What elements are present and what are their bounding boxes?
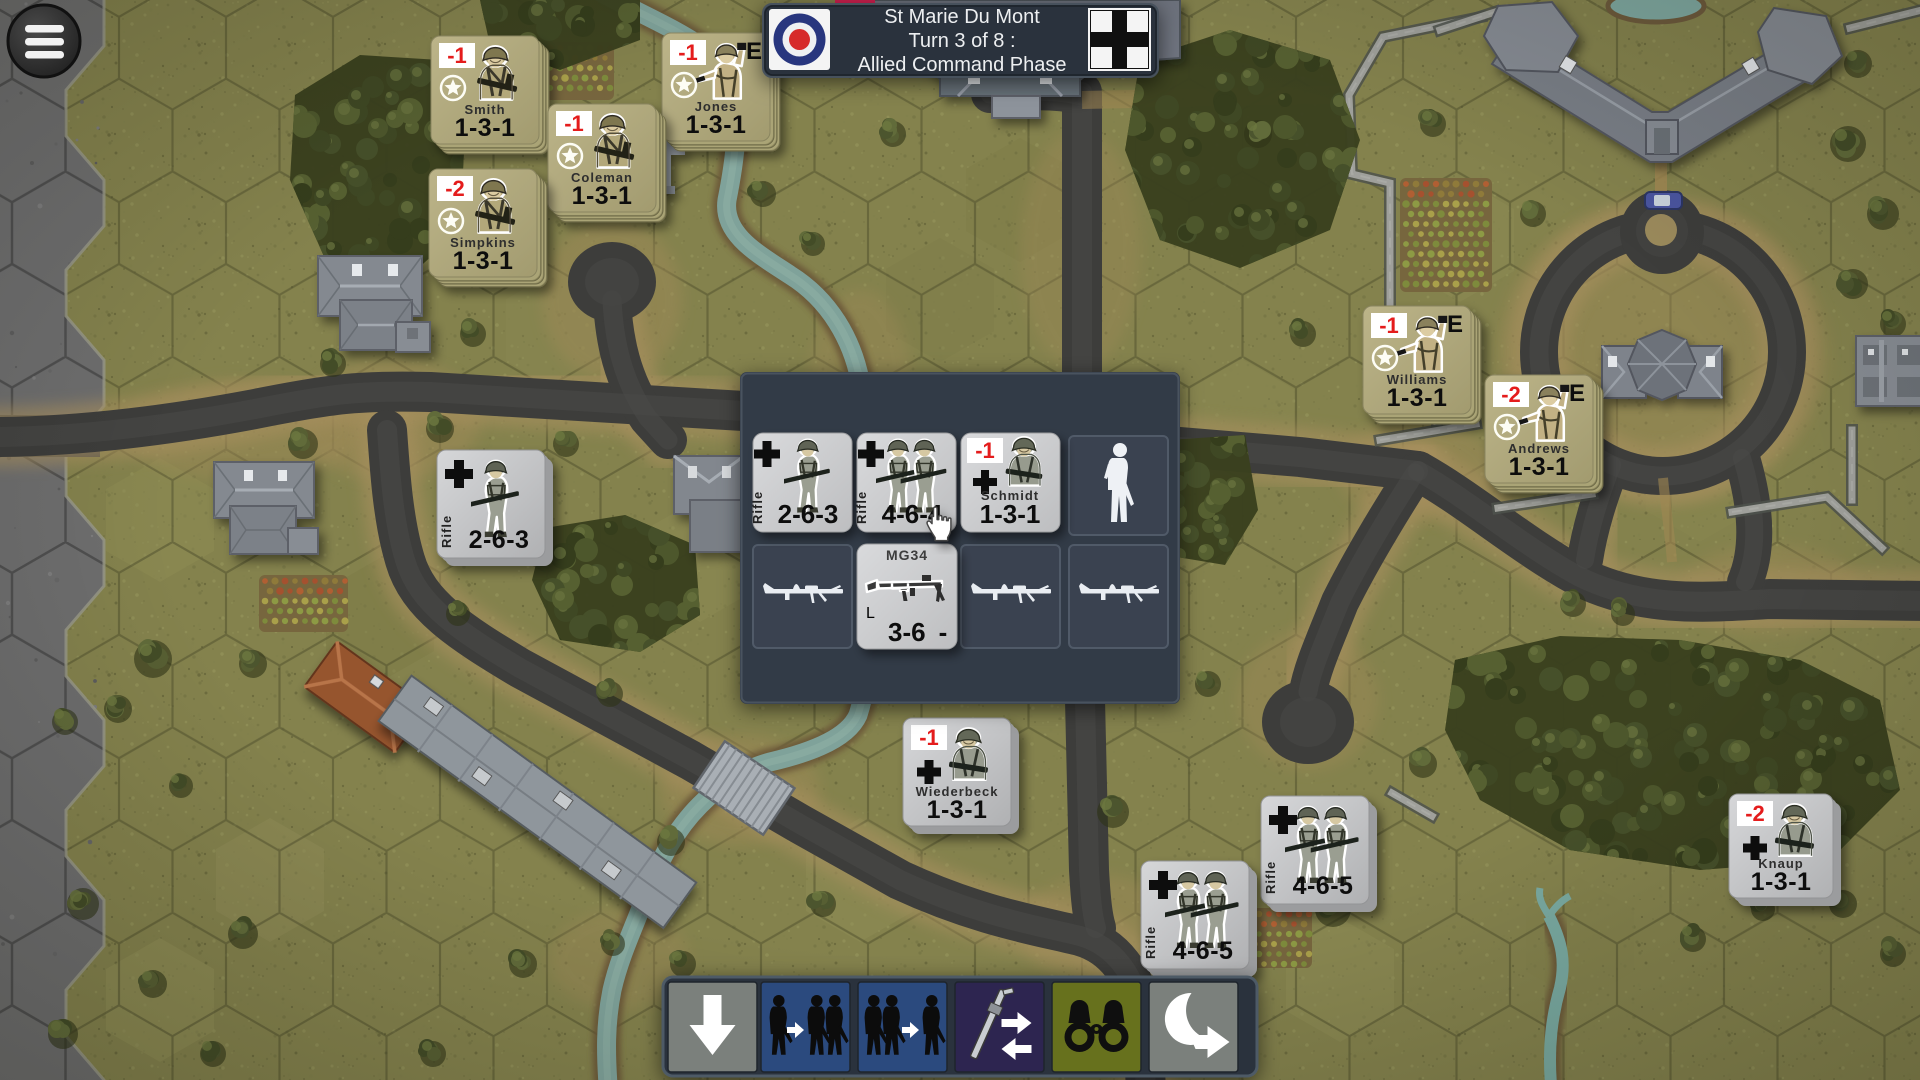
svg-text:E: E — [1569, 380, 1585, 407]
svg-text:1-3-1: 1-3-1 — [455, 114, 516, 142]
svg-text:Turn 3 of 8 :: Turn 3 of 8 : — [908, 30, 1015, 52]
svg-text:4-6-5: 4-6-5 — [1173, 937, 1234, 965]
svg-text:E: E — [1447, 311, 1463, 338]
svg-text:4-6-5: 4-6-5 — [1293, 872, 1354, 900]
svg-text:-1: -1 — [975, 438, 995, 463]
svg-text:1-3-1: 1-3-1 — [927, 796, 988, 824]
svg-text:-1: -1 — [447, 43, 467, 68]
svg-text:1-3-1: 1-3-1 — [572, 182, 633, 210]
svg-text:-1: -1 — [919, 725, 939, 750]
svg-text:3-6: 3-6 — [888, 617, 926, 647]
svg-text:Rifle: Rifle — [750, 491, 765, 524]
svg-text:Rifle: Rifle — [1263, 861, 1278, 894]
svg-text:Rifle: Rifle — [854, 491, 869, 524]
svg-text:Rifle: Rifle — [439, 515, 454, 548]
svg-text:-2: -2 — [1501, 382, 1521, 407]
svg-text:-2: -2 — [445, 176, 465, 201]
svg-text:L: L — [866, 605, 875, 622]
svg-text:-1: -1 — [1379, 313, 1399, 338]
svg-text:2-6-3: 2-6-3 — [469, 526, 530, 554]
svg-text:MG34: MG34 — [886, 547, 928, 563]
svg-text:E: E — [746, 38, 762, 65]
svg-text:1-3-1: 1-3-1 — [686, 111, 747, 139]
svg-text:1-3-1: 1-3-1 — [1509, 453, 1570, 481]
svg-text:Rifle: Rifle — [1143, 926, 1158, 959]
svg-text:2-6-3: 2-6-3 — [778, 499, 839, 529]
svg-text:-2: -2 — [1745, 801, 1765, 826]
svg-text:1-3-1: 1-3-1 — [1387, 384, 1448, 412]
svg-text:1-3-1: 1-3-1 — [980, 499, 1041, 529]
svg-text:1-3-1: 1-3-1 — [1751, 868, 1812, 896]
svg-text:St Marie Du Mont: St Marie Du Mont — [884, 6, 1040, 28]
svg-text:-1: -1 — [678, 40, 698, 65]
svg-text:-: - — [939, 617, 948, 647]
svg-text:1-3-1: 1-3-1 — [453, 247, 514, 275]
svg-text:Allied Command Phase: Allied Command Phase — [858, 54, 1067, 76]
svg-text:-1: -1 — [564, 111, 584, 136]
